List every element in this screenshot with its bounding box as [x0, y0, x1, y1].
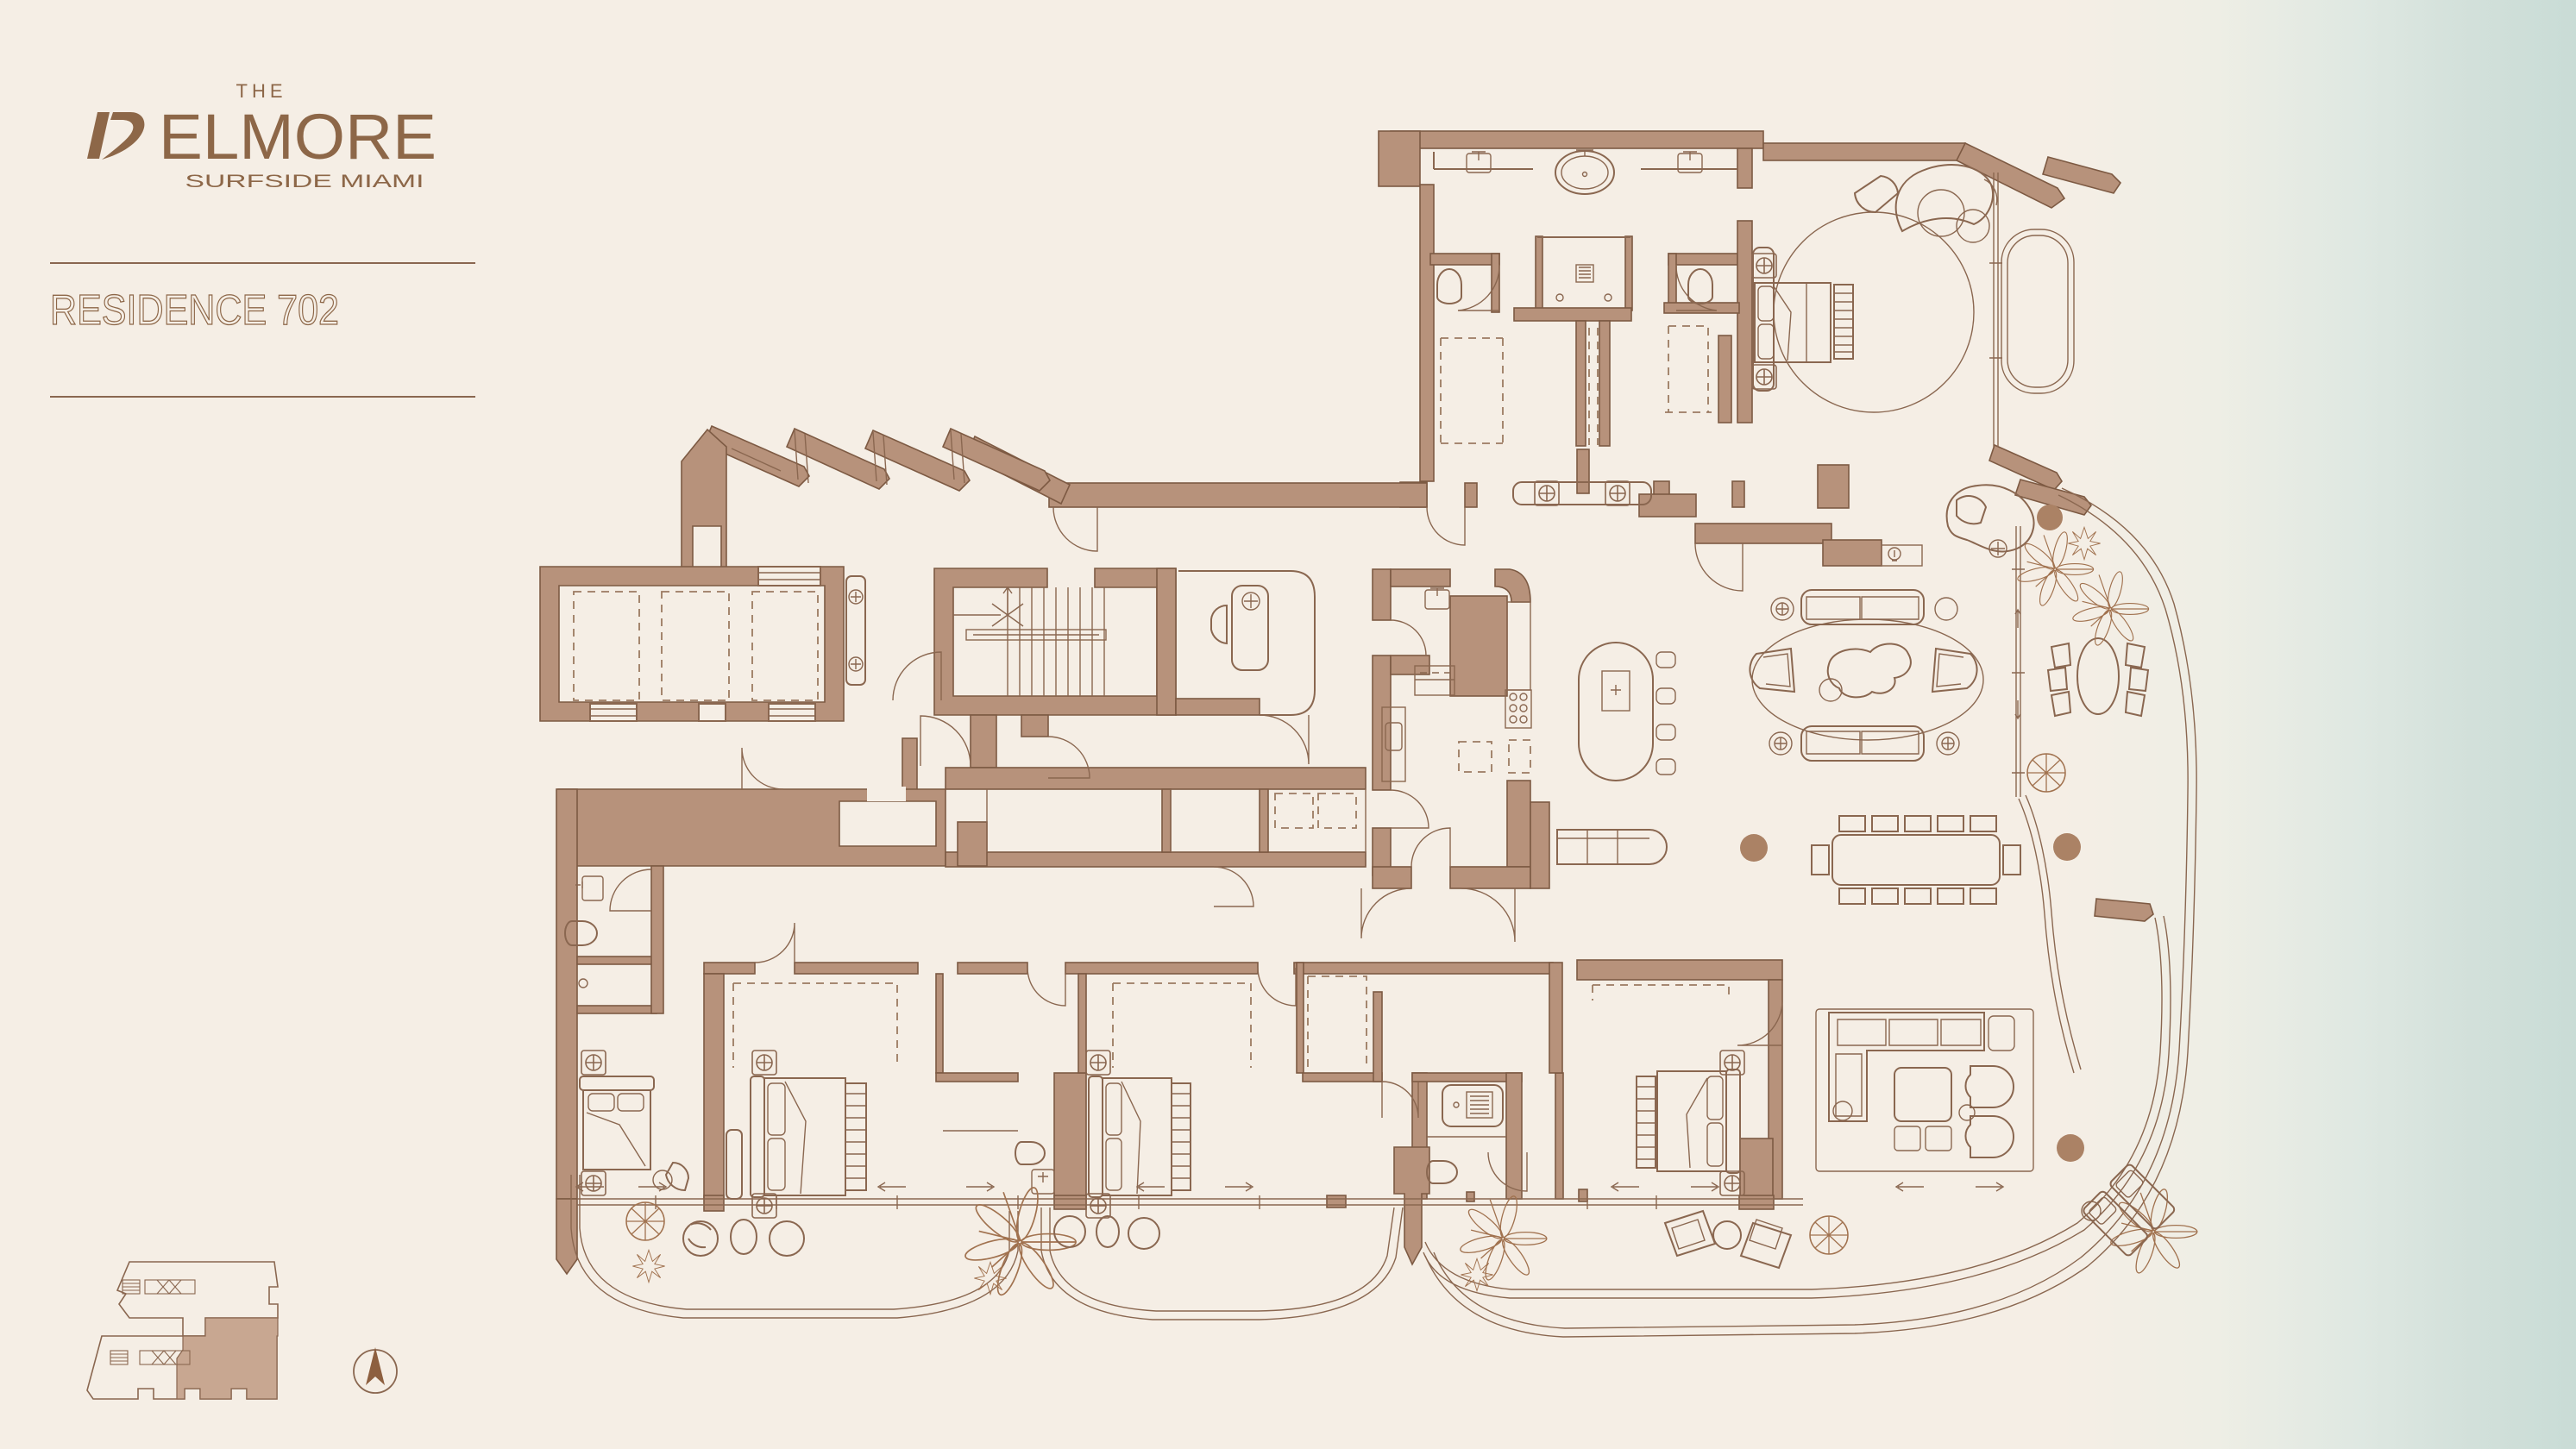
svg-text:THE: THE — [236, 80, 287, 102]
svg-text:ELMORE: ELMORE — [159, 101, 437, 172]
svg-text:RESIDENCE 702: RESIDENCE 702 — [50, 287, 339, 334]
svg-text:SURFSIDE MIAMI: SURFSIDE MIAMI — [185, 172, 424, 191]
